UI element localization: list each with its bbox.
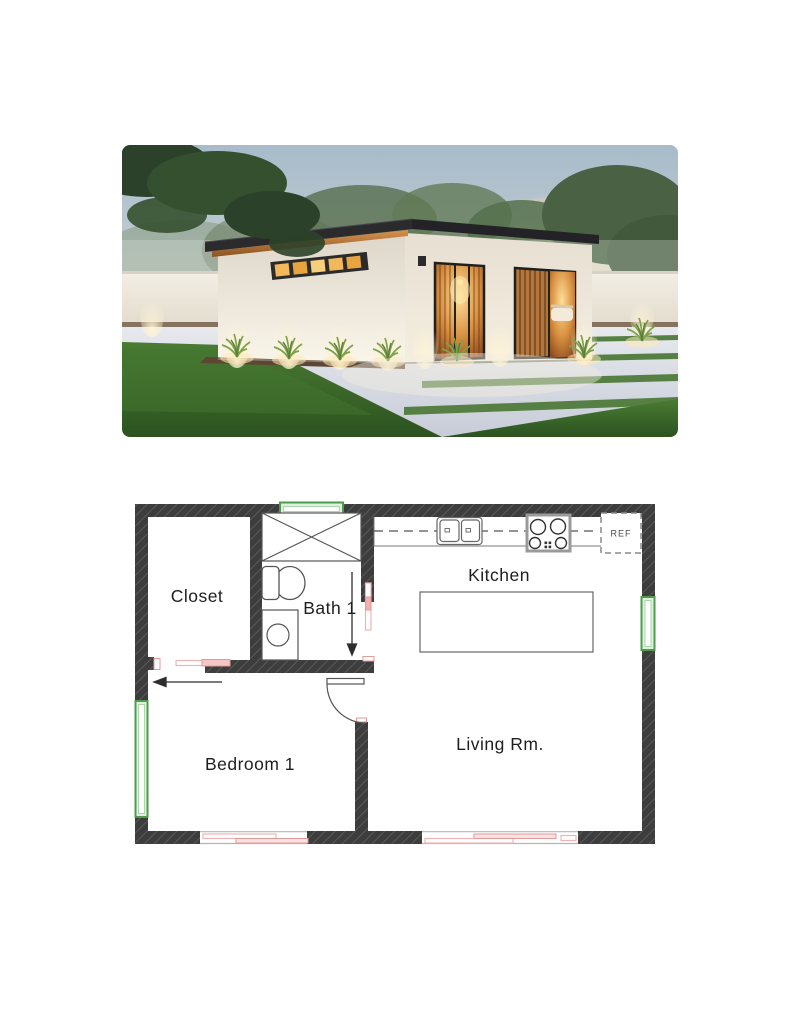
room-label-livingrm: Living Rm. (456, 734, 544, 754)
kitchen-island (420, 592, 593, 652)
exterior-photo-svg (122, 145, 678, 437)
bed (551, 308, 573, 321)
room-label-kitchen: Kitchen (468, 565, 530, 585)
kitchen-sink (437, 518, 482, 545)
floor-plan-svg: REF Closet Bath 1 Kitchen Bedroom 1 Livi… (133, 498, 657, 848)
window-left (136, 701, 148, 817)
shower (262, 513, 361, 561)
glass-door-right (515, 268, 575, 358)
stove (527, 515, 570, 551)
washer (262, 610, 298, 660)
room-label-closet: Closet (171, 586, 224, 606)
toilet (262, 567, 305, 600)
exterior-photo (122, 145, 678, 437)
window-right (642, 597, 655, 650)
refrigerator-label: REF (611, 529, 632, 539)
plan-interior (135, 504, 655, 844)
refrigerator: REF (601, 513, 641, 553)
floor-plan: REF Closet Bath 1 Kitchen Bedroom 1 Livi… (133, 498, 657, 848)
room-label-bedroom1: Bedroom 1 (205, 754, 295, 774)
room-label-bath1: Bath 1 (303, 598, 357, 618)
wall-light-fixture (418, 256, 426, 266)
patio-light-pool (342, 353, 602, 397)
